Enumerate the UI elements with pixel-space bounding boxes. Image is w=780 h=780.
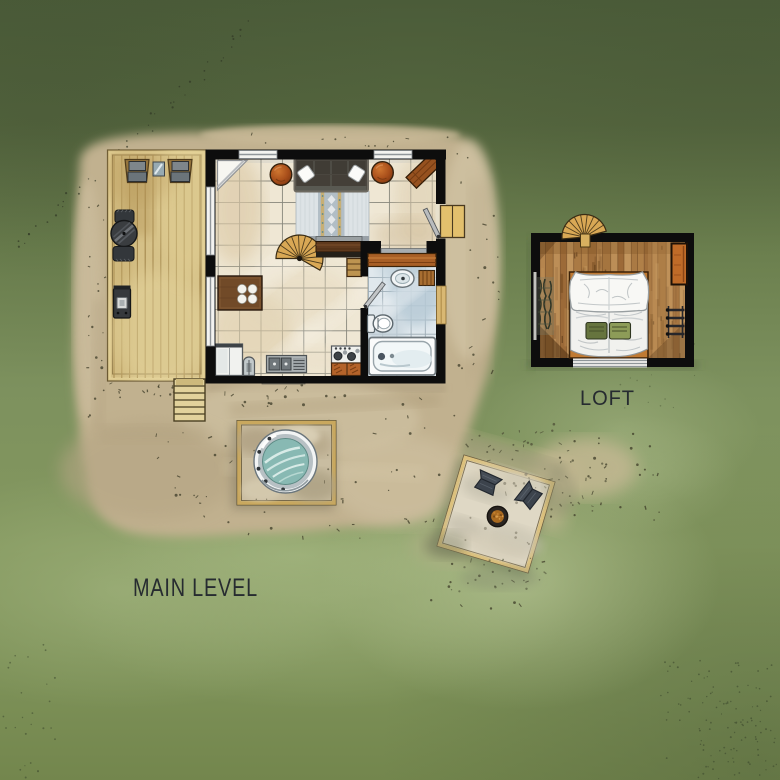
svg-text:MAIN LEVEL: MAIN LEVEL (133, 574, 258, 602)
svg-text:LOFT: LOFT (580, 386, 635, 410)
